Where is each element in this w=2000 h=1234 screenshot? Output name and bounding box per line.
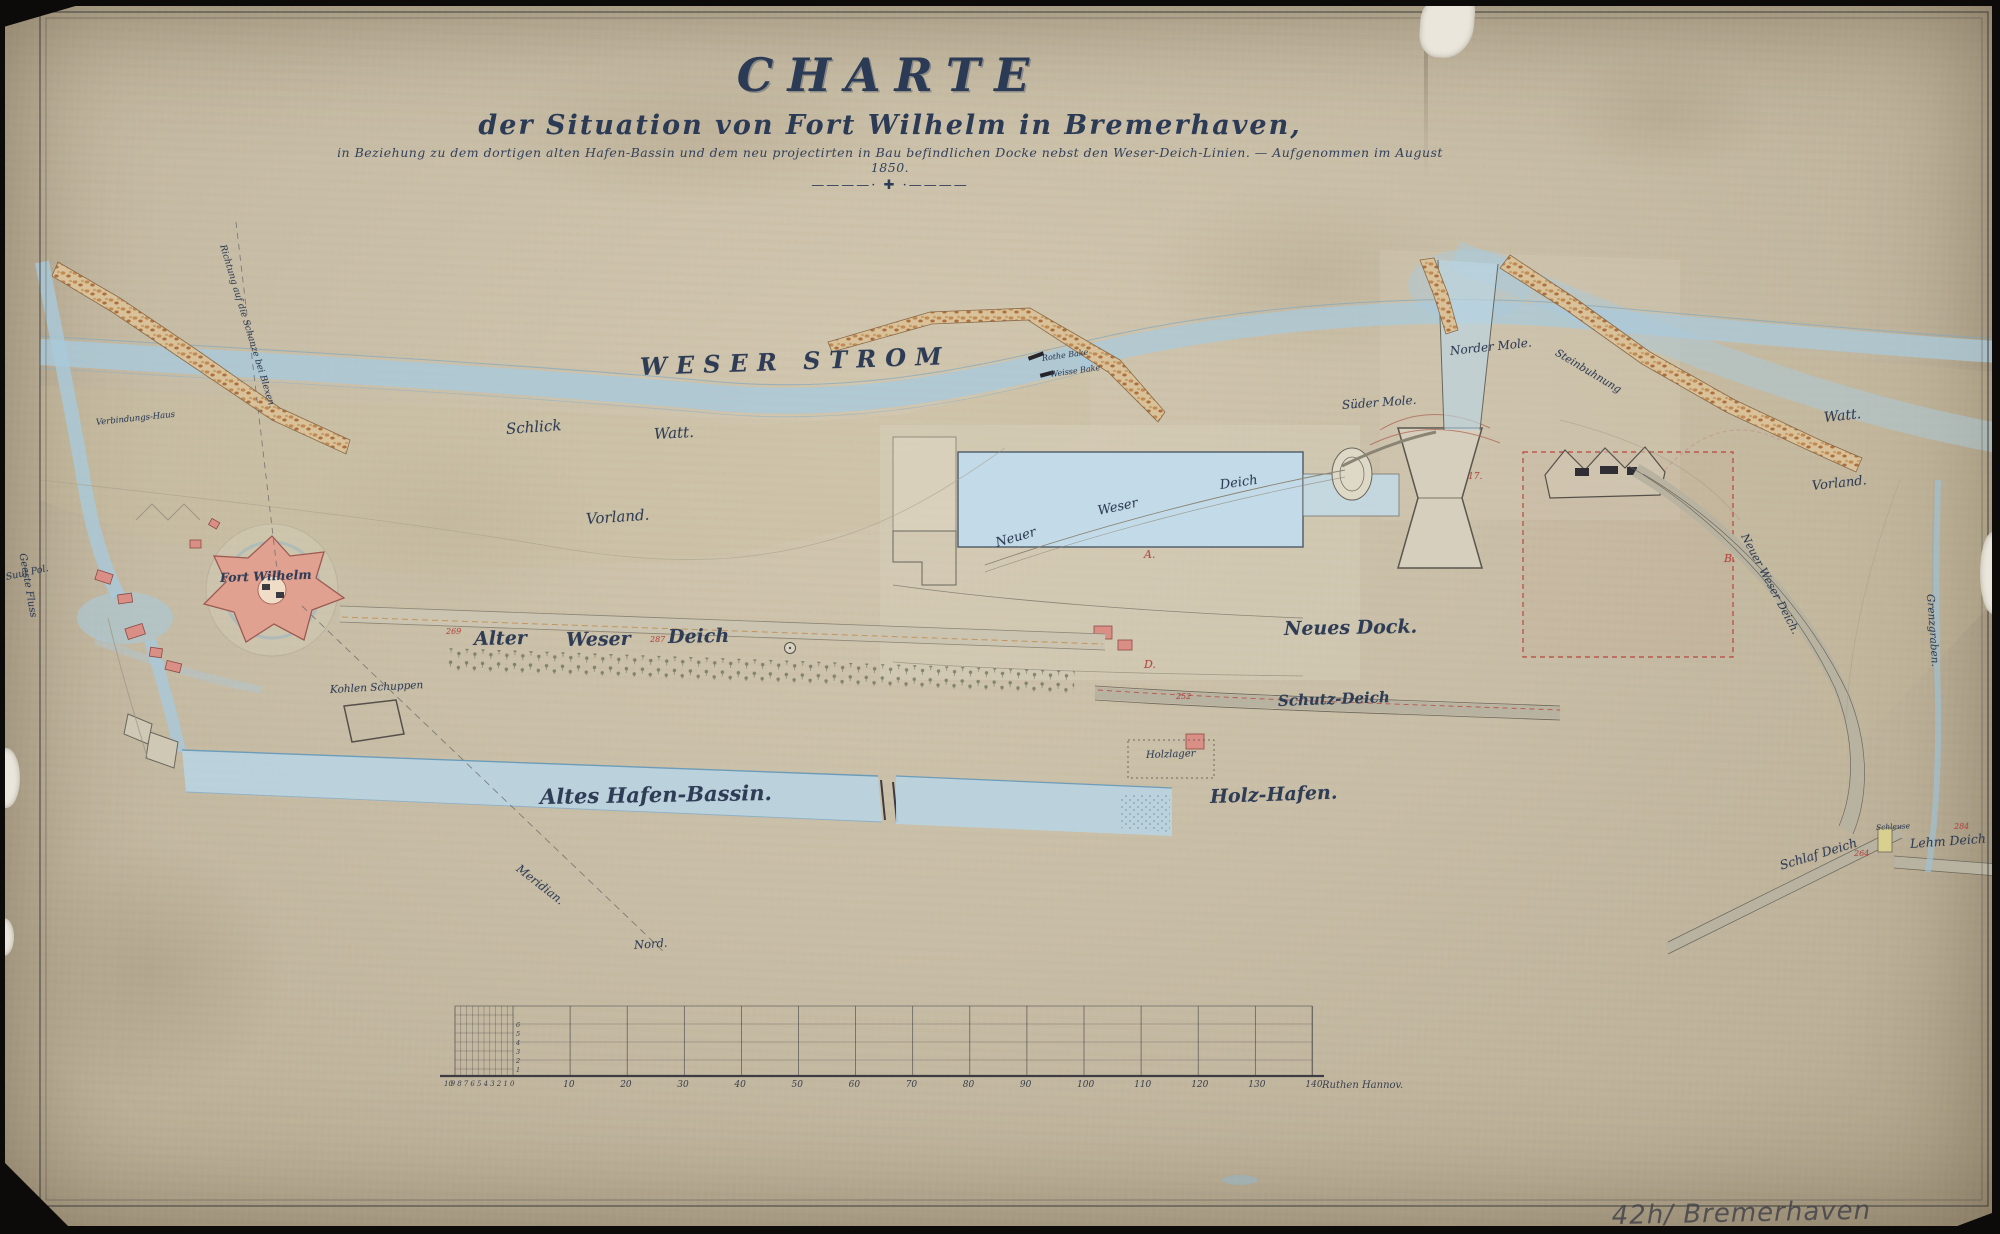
scale-row-label: 5 xyxy=(516,1030,520,1038)
scale-fine-label: 6 xyxy=(470,1080,474,1088)
scale-fine-label: 2 xyxy=(497,1080,501,1088)
scale-unit-caption: Ruthen Hannov. xyxy=(1322,1080,1403,1091)
scale-major-label: 50 xyxy=(792,1080,803,1090)
scale-fine-label: 3 xyxy=(490,1080,494,1088)
scale-major-label: 70 xyxy=(906,1080,917,1090)
map-canvas: WESER STROMSchlickWatt.Vorland.Fort Wilh… xyxy=(0,0,2000,1234)
scale-major-label: 100 xyxy=(1077,1080,1094,1090)
scale-major-label: 110 xyxy=(1134,1080,1151,1090)
map-title: CHARTE xyxy=(330,48,1450,102)
scale-bar-drawing xyxy=(440,1006,1324,1185)
scan-edge xyxy=(0,1226,2000,1234)
scale-fine-label: 1 xyxy=(503,1080,507,1088)
schutz-deich-band xyxy=(1095,686,1560,720)
scale-major-label: 80 xyxy=(963,1080,974,1090)
scale-fine-label: 7 xyxy=(464,1080,468,1088)
scan-edge xyxy=(1992,0,2000,1234)
scale-row-label: 4 xyxy=(516,1039,520,1047)
altes-hafen-bassin-water xyxy=(182,750,897,822)
scan-edge xyxy=(0,0,5,1234)
scale-fine-label: 5 xyxy=(477,1080,481,1088)
title-ornament: ————· ✚ ·———— xyxy=(330,178,1450,193)
title-block: CHARTE der Situation von Fort Wilhelm in… xyxy=(330,48,1450,193)
scale-major-label: 130 xyxy=(1248,1080,1265,1090)
scale-major-label: 30 xyxy=(677,1080,688,1090)
scale-row-label: 1 xyxy=(516,1066,520,1074)
scale-major-label: 140 xyxy=(1305,1080,1322,1090)
scale-row-label: 2 xyxy=(516,1057,520,1065)
scan-edge xyxy=(0,0,2000,6)
scale-major-label: 40 xyxy=(734,1080,745,1090)
scale-major-label: 20 xyxy=(620,1080,631,1090)
scale-major-label: 90 xyxy=(1020,1080,1031,1090)
scale-major-label: 60 xyxy=(849,1080,860,1090)
scale-fine-label: 0 xyxy=(510,1080,514,1088)
schlaf-lehm-deich xyxy=(1668,826,1998,954)
map-dedication-line: in Beziehung zu dem dortigen alten Hafen… xyxy=(330,145,1450,175)
scale-row-label: 3 xyxy=(516,1048,520,1056)
scale-fine-label: 8 xyxy=(457,1080,461,1088)
scale-row-label: 6 xyxy=(516,1021,520,1029)
scale-fine-label: 9 xyxy=(451,1080,455,1088)
scale-major-label: 10 xyxy=(563,1080,574,1090)
holz-hafen-water xyxy=(896,776,1172,836)
scale-fine-label: 4 xyxy=(484,1080,488,1088)
map-subtitle: der Situation von Fort Wilhelm in Bremer… xyxy=(330,110,1450,141)
scale-major-label: 120 xyxy=(1191,1080,1208,1090)
